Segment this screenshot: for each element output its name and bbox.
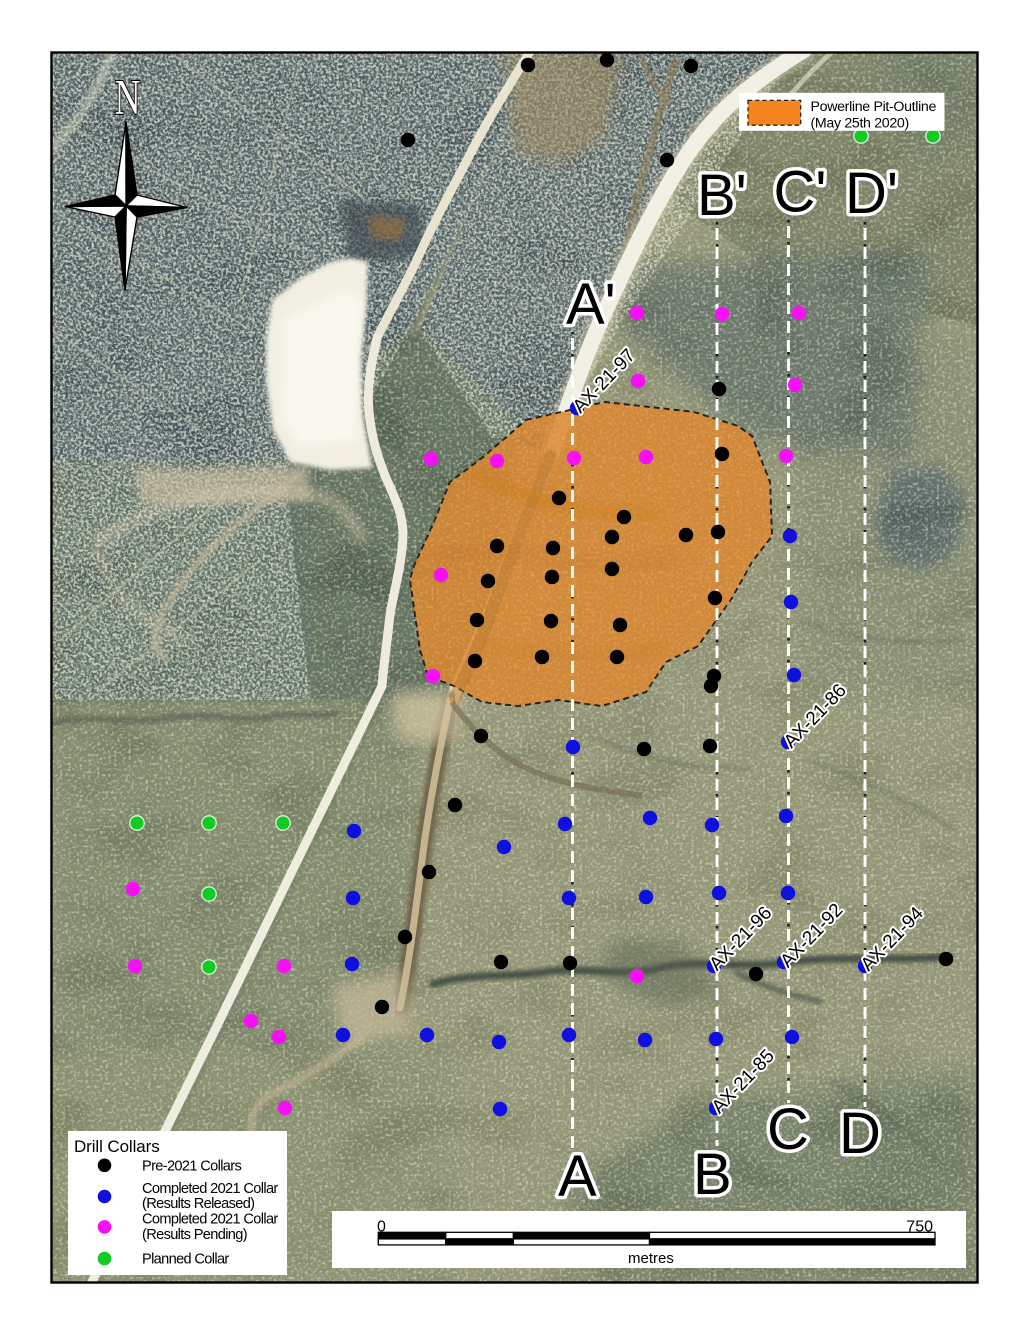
svg-text:Completed 2021 Collar: Completed 2021 Collar [142, 1211, 278, 1227]
svg-text:B: B [693, 1142, 732, 1207]
svg-text:Drill Collars: Drill Collars [74, 1137, 160, 1156]
svg-text:C': C' [774, 160, 827, 225]
svg-text:A': A' [566, 272, 616, 337]
svg-text:A: A [558, 1144, 597, 1209]
svg-text:Planned Collar: Planned Collar [142, 1251, 229, 1267]
svg-text:metres: metres [628, 1250, 674, 1267]
svg-text:Powerline Pit-Outline: Powerline Pit-Outline [811, 99, 937, 115]
svg-text:D: D [839, 1101, 881, 1166]
svg-text:C: C [767, 1097, 809, 1162]
svg-text:(Results Released): (Results Released) [142, 1196, 254, 1212]
svg-text:B': B' [697, 163, 747, 228]
svg-text:Completed 2021 Collar: Completed 2021 Collar [142, 1181, 278, 1197]
svg-text:N: N [115, 69, 141, 125]
svg-text:(May 25th 2020): (May 25th 2020) [811, 115, 909, 131]
svg-text:Pre-2021 Collars: Pre-2021 Collars [142, 1159, 241, 1175]
svg-text:(Results Pending): (Results Pending) [142, 1227, 247, 1243]
svg-text:D': D' [845, 161, 898, 226]
